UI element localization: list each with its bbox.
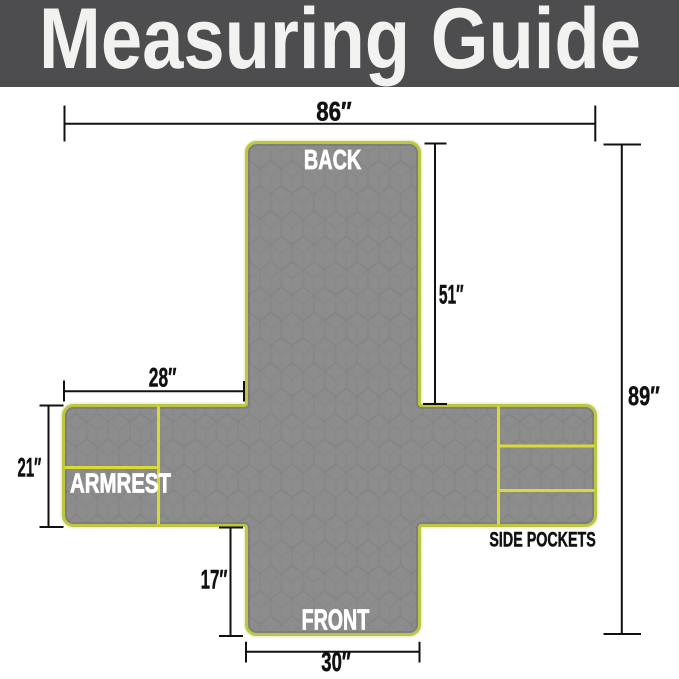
svg-text:Measuring Guide: Measuring Guide	[39, 0, 641, 87]
svg-text:BACK: BACK	[304, 144, 361, 175]
svg-text:89″: 89″	[628, 381, 660, 411]
svg-text:51″: 51″	[439, 279, 464, 309]
svg-text:ARMREST: ARMREST	[70, 467, 171, 498]
svg-text:30″: 30″	[321, 647, 350, 674]
svg-text:21″: 21″	[18, 453, 42, 483]
svg-text:28″: 28″	[149, 363, 177, 393]
svg-text:86″: 86″	[316, 97, 352, 127]
svg-text:FRONT: FRONT	[302, 605, 370, 637]
svg-text:17″: 17″	[201, 565, 228, 595]
svg-text:SIDE POCKETS: SIDE POCKETS	[489, 529, 595, 552]
